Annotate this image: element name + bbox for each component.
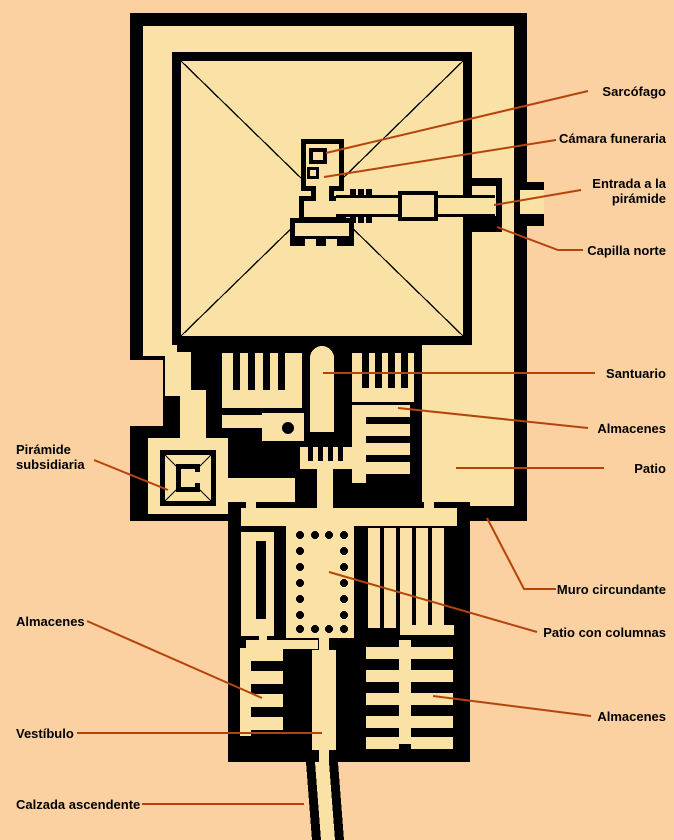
label-muro-circundante: Muro circundante <box>557 582 666 597</box>
label-piramide-subsidiaria: Pirámide subsidiaria <box>16 442 102 472</box>
floor-plan <box>0 0 674 840</box>
label-capilla-norte: Capilla norte <box>587 243 666 258</box>
enclosure-gate <box>514 182 544 226</box>
label-santuario: Santuario <box>606 366 666 381</box>
label-entrada-piramide: Entrada a la pirámide <box>570 176 666 206</box>
label-camara-funeraria: Cámara funeraria <box>559 131 666 146</box>
label-sarcofago: Sarcófago <box>602 84 666 99</box>
lower-temple-block <box>228 500 470 764</box>
label-almacenes-este: Almacenes <box>597 421 666 436</box>
label-patio: Patio <box>634 461 666 476</box>
causeway <box>306 762 344 840</box>
column-dot <box>282 422 294 434</box>
label-almacenes-sureste: Almacenes <box>597 709 666 724</box>
label-patio-columnas: Patio con columnas <box>543 625 666 640</box>
label-almacenes-oeste: Almacenes <box>16 614 85 629</box>
label-calzada-ascendente: Calzada ascendente <box>16 797 140 812</box>
sanctuary <box>310 356 334 432</box>
storerooms-east <box>352 405 410 483</box>
pyramid-complex-diagram: Sarcófago Cámara funeraria Entrada a la … <box>0 0 674 840</box>
patio-area <box>422 356 514 506</box>
vestibule <box>312 638 336 764</box>
sarcophagus <box>309 148 327 164</box>
long-room-west <box>241 532 274 644</box>
label-vestibulo: Vestíbulo <box>16 726 74 741</box>
columned-court <box>286 526 354 638</box>
